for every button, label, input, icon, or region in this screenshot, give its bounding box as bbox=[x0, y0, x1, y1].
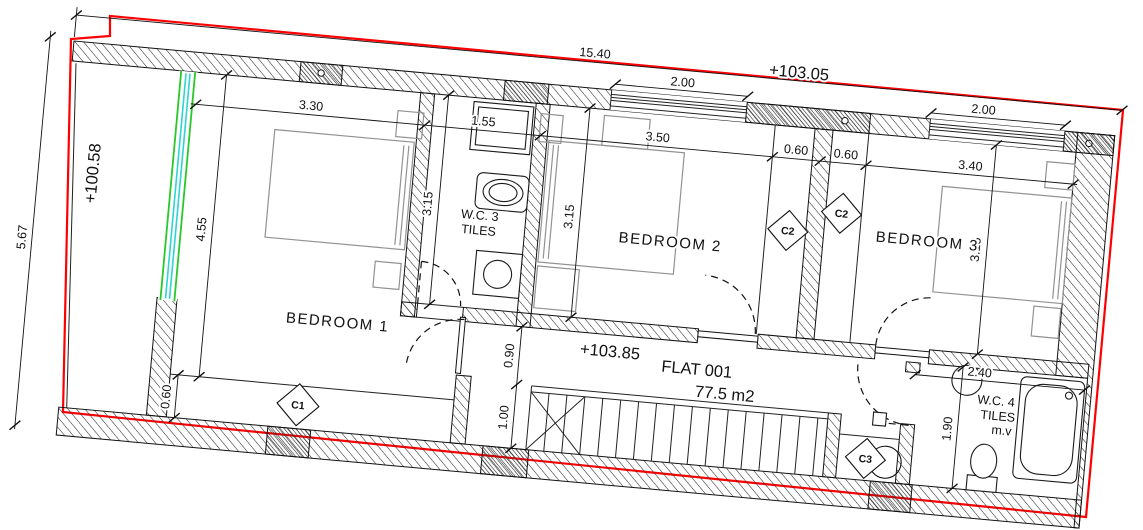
label-wc4-line2: TILES bbox=[980, 408, 1016, 425]
dim-window3: 2.00 bbox=[971, 102, 997, 118]
dim-bedroom2-depth: 3.15 bbox=[561, 204, 577, 230]
dim-wc4-width: 2.40 bbox=[967, 364, 993, 380]
dim-bedroom3-width: 3.40 bbox=[958, 158, 984, 174]
door-wc3 bbox=[418, 261, 465, 307]
floor-plan-page: C1 C2 C2 C3 15.40 +103.05 2 bbox=[0, 0, 1143, 530]
nightstand bbox=[1031, 306, 1061, 338]
label-bedroom1: BEDROOM 1 bbox=[285, 309, 390, 335]
label-flat-area: 77.5 m2 bbox=[694, 383, 755, 406]
marker-c1-label: C1 bbox=[291, 399, 306, 412]
door-bedroom3 bbox=[875, 293, 934, 358]
dim-wc3-depth: 3.15 bbox=[420, 191, 436, 217]
door-wc4 bbox=[853, 364, 914, 428]
level-top: +103.05 bbox=[768, 61, 829, 84]
dim-total-width: 15.40 bbox=[579, 45, 611, 62]
dim-hall-width: 0.90 bbox=[501, 343, 517, 369]
window-bedroom3 bbox=[929, 119, 1065, 151]
dim-stair-width: 1.00 bbox=[496, 405, 512, 431]
building-plan: C1 C2 C2 C3 15.40 +103.05 2 bbox=[0, 0, 1129, 529]
dim-total-height: 5.67 bbox=[14, 224, 30, 250]
column-pin-icon bbox=[841, 117, 848, 124]
dim-closet-b: 0.60 bbox=[833, 146, 859, 162]
column-pin-icon bbox=[318, 70, 325, 77]
level-site-left: +100.58 bbox=[81, 143, 104, 204]
label-wc3-line2: TILES bbox=[461, 222, 497, 239]
marker-c2a-label: C2 bbox=[780, 225, 795, 238]
dim-wc3-width: 1.55 bbox=[471, 113, 497, 129]
dim-b1-strip: 0.60 bbox=[158, 384, 174, 410]
wc4-fixtures bbox=[942, 364, 1086, 500]
dim-wc4-depth: 1.90 bbox=[939, 416, 955, 442]
bed-bedroom1 bbox=[261, 100, 424, 291]
label-bedroom3: BEDROOM 3 bbox=[875, 229, 980, 255]
level-hall: +103.85 bbox=[579, 340, 640, 363]
dim-closet-a: 0.60 bbox=[783, 142, 809, 158]
marker-c2a: C2 bbox=[766, 209, 809, 252]
marker-c3: C3 bbox=[844, 437, 903, 482]
door-bedroom2 bbox=[698, 275, 763, 342]
dim-bedroom2-width: 3.50 bbox=[645, 129, 671, 145]
marker-c3-label: C3 bbox=[858, 453, 873, 466]
dim-bedroom1-width: 3.30 bbox=[298, 98, 324, 114]
floor-plan-canvas: C1 C2 C2 C3 15.40 +103.05 2 bbox=[0, 0, 1143, 530]
marker-c1: C1 bbox=[275, 382, 321, 428]
door-bedroom1 bbox=[406, 313, 466, 374]
label-flat: FLAT 001 bbox=[661, 358, 733, 382]
dim-window2: 2.00 bbox=[670, 74, 696, 90]
dim-bedroom1-depth: 4.55 bbox=[193, 217, 209, 243]
marker-c2b-label: C2 bbox=[834, 208, 849, 221]
label-bedroom2: BEDROOM 2 bbox=[618, 229, 723, 255]
label-wc4-line3: m.v bbox=[991, 423, 1013, 439]
glazed-screen bbox=[158, 71, 198, 302]
exterior-walls bbox=[38, 41, 1114, 528]
nightstand bbox=[373, 261, 401, 289]
shelf bbox=[602, 115, 651, 149]
